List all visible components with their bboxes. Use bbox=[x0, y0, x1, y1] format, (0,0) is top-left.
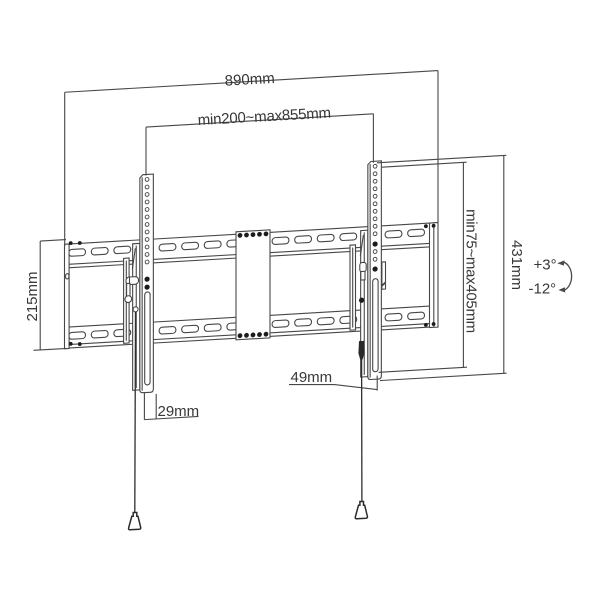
svg-text:-12°: -12° bbox=[529, 281, 557, 298]
svg-text:49mm: 49mm bbox=[291, 369, 333, 386]
svg-text:890mm: 890mm bbox=[224, 70, 275, 90]
svg-text:+3°: +3° bbox=[534, 257, 557, 274]
svg-text:29mm: 29mm bbox=[158, 403, 200, 420]
svg-text:215mm: 215mm bbox=[24, 271, 41, 321]
svg-text:431mm: 431mm bbox=[508, 240, 525, 290]
svg-text:min75~max405mm: min75~max405mm bbox=[462, 209, 479, 333]
